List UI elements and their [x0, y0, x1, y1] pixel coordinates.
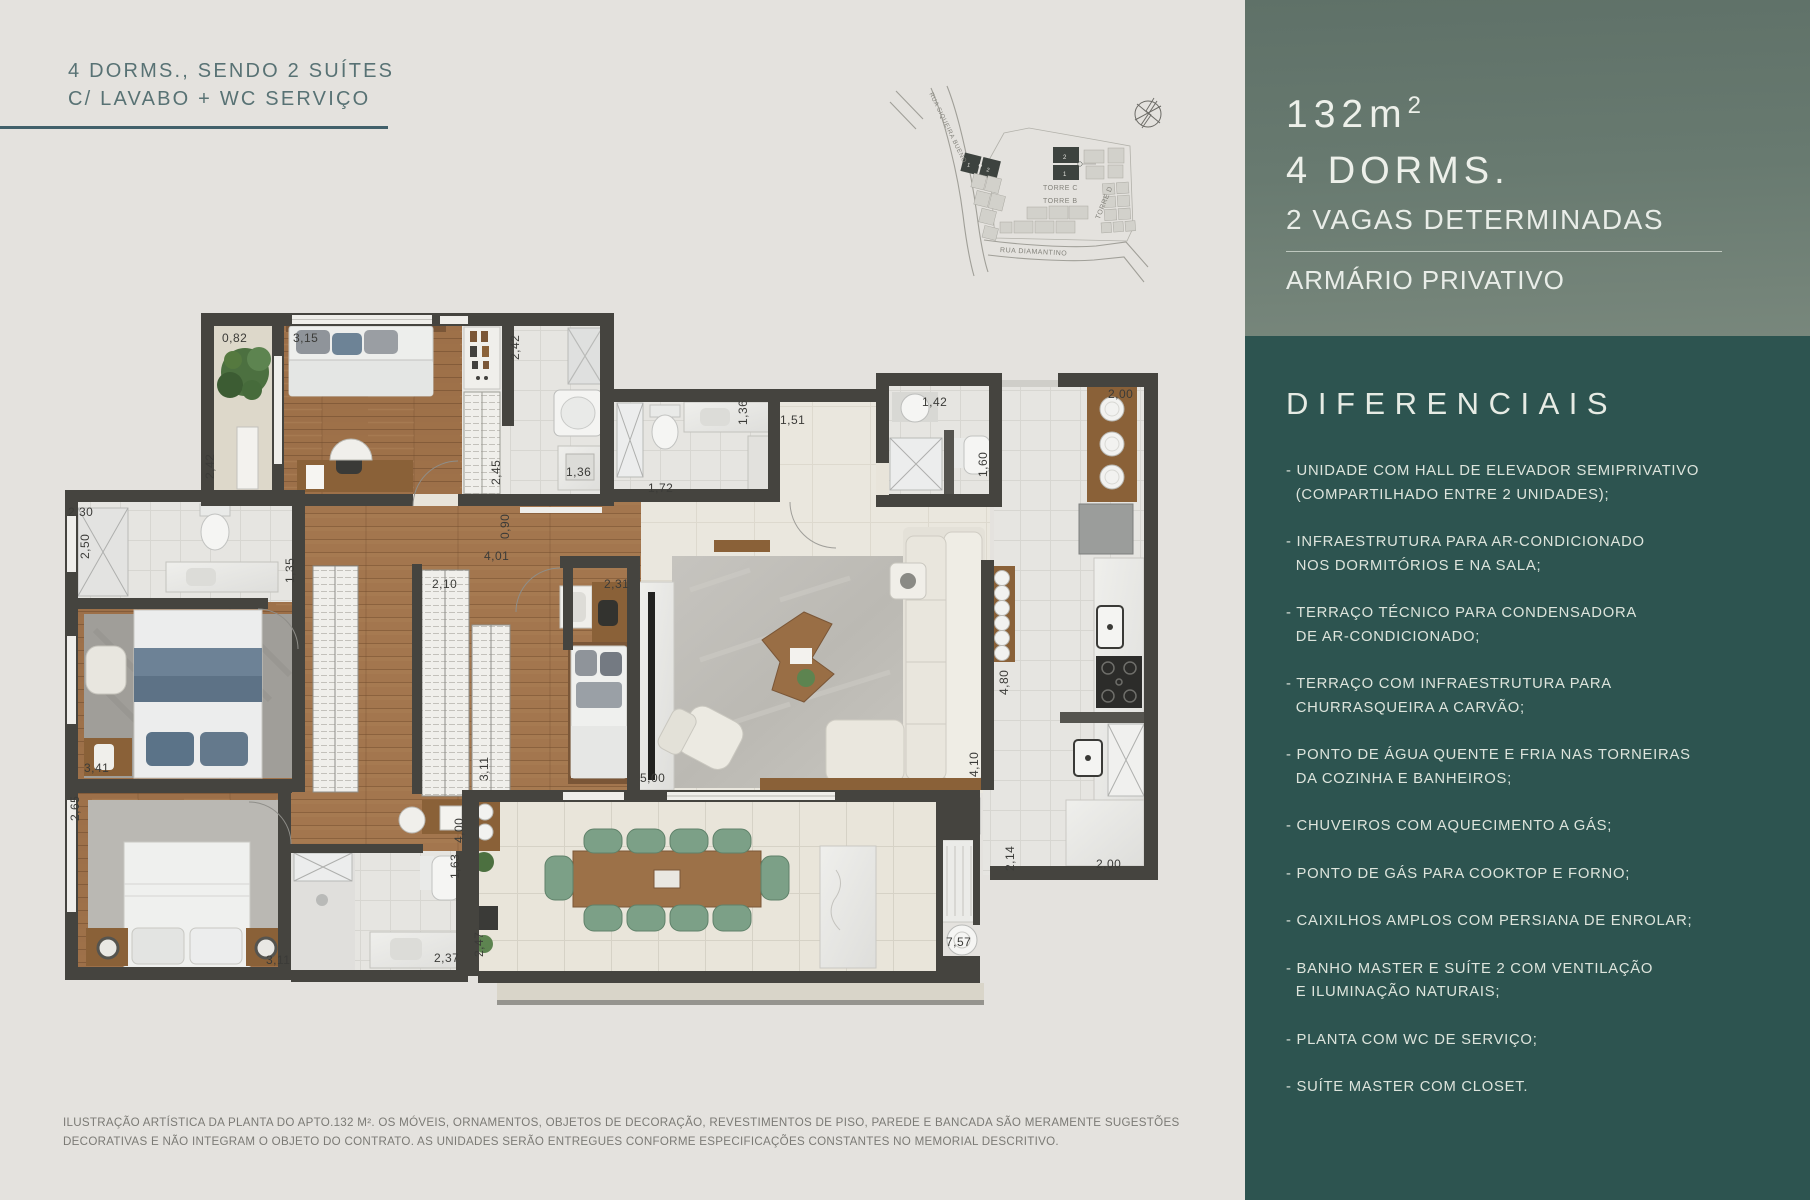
svg-text:4,80: 4,80: [997, 670, 1011, 695]
svg-text:4,01: 4,01: [484, 549, 509, 563]
svg-text:2,42: 2,42: [203, 454, 217, 479]
svg-text:3,11: 3,11: [477, 757, 491, 781]
svg-text:0,90: 0,90: [498, 514, 512, 539]
svg-text:1,63: 1,63: [448, 854, 462, 879]
svg-text:5,00: 5,00: [640, 771, 665, 785]
svg-text:4,10: 4,10: [967, 752, 981, 777]
svg-text:2,47: 2,47: [472, 932, 486, 957]
svg-text:7,57: 7,57: [946, 935, 971, 949]
svg-text:2,65: 2,65: [68, 796, 82, 821]
svg-text:3,15: 3,15: [293, 331, 318, 345]
svg-text:2,10: 2,10: [432, 577, 457, 591]
svg-text:4,00: 4,00: [452, 818, 466, 843]
svg-text:1,60: 1,60: [976, 452, 990, 477]
svg-text:2,14: 2,14: [1003, 846, 1017, 871]
svg-text:1,51: 1,51: [780, 413, 805, 427]
svg-text:2,31: 2,31: [604, 577, 629, 591]
svg-text:1,36: 1,36: [566, 465, 591, 479]
svg-text:2,37: 2,37: [434, 951, 459, 965]
svg-text:2,42: 2,42: [508, 335, 522, 360]
svg-text:3,11: 3,11: [266, 953, 290, 967]
svg-text:2,00: 2,00: [1096, 857, 1121, 871]
svg-text:2,00: 2,00: [1108, 387, 1133, 401]
svg-text:3,41: 3,41: [84, 761, 109, 775]
svg-text:1,42: 1,42: [922, 395, 947, 409]
svg-text:2,50: 2,50: [78, 534, 92, 559]
svg-text:0,82: 0,82: [222, 331, 247, 345]
svg-text:2,45: 2,45: [489, 460, 503, 485]
svg-text:1,35: 1,35: [283, 558, 297, 583]
svg-text:1,36: 1,36: [736, 400, 750, 425]
svg-text:1,72: 1,72: [648, 481, 673, 495]
svg-text:2,30: 2,30: [68, 505, 93, 519]
